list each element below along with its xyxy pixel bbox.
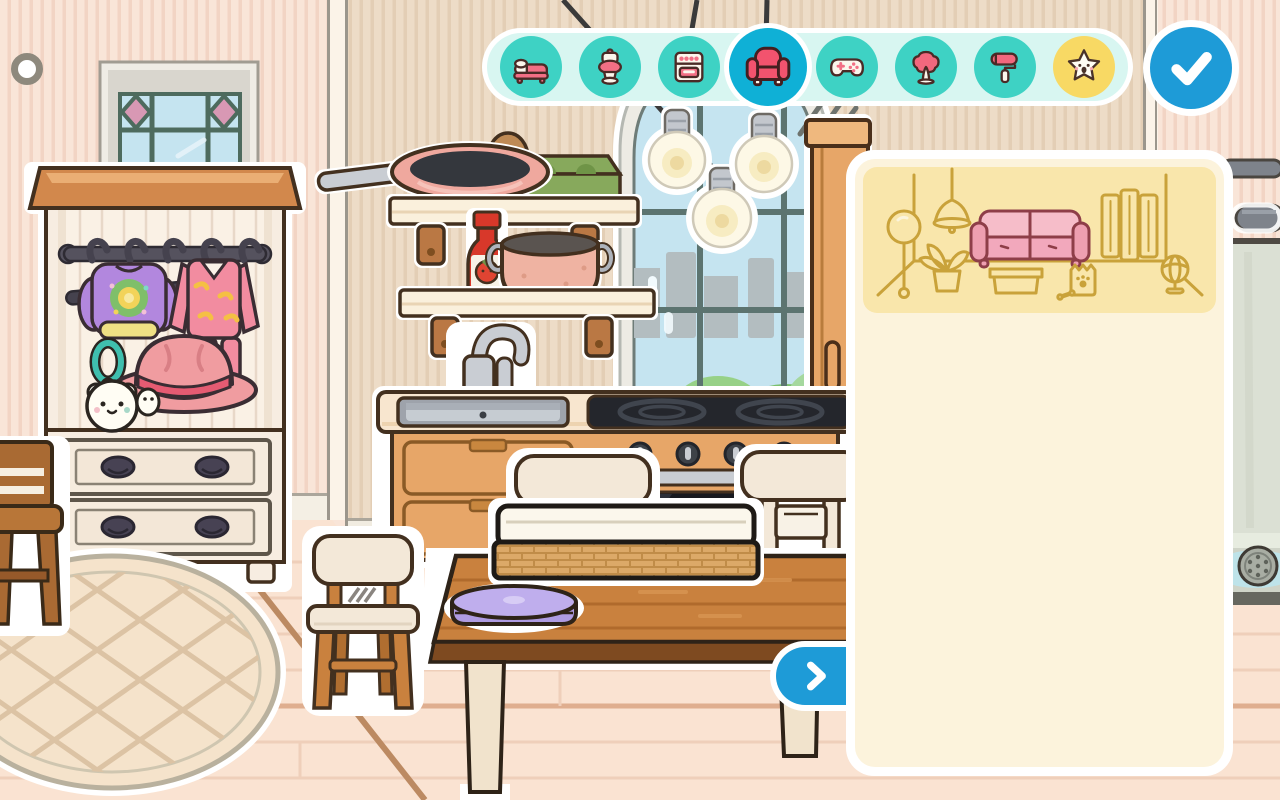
pendant-lamp (934, 169, 970, 233)
stove-icon (669, 47, 709, 87)
living-room-set-preview (863, 167, 1216, 313)
picnic-basket[interactable] (488, 498, 764, 586)
furniture-panel (846, 150, 1233, 776)
toolbar-item-decorate[interactable] (974, 36, 1036, 98)
bed-icon (511, 47, 551, 87)
toolbar-item-bathroom[interactable] (579, 36, 641, 98)
pink-sofa (971, 211, 1089, 267)
shower-drain (1239, 547, 1277, 585)
star-icon (1064, 47, 1104, 87)
folding-screen (1102, 190, 1157, 260)
toolbar-item-outdoor[interactable] (895, 36, 957, 98)
globe (1162, 256, 1188, 293)
stained-glass-transom (100, 62, 258, 176)
toolbar-item-beds[interactable] (500, 36, 562, 98)
game-screen (0, 0, 1280, 800)
storage-chest (990, 269, 1042, 293)
furniture-panel-body[interactable] (855, 159, 1224, 767)
panel-collapse-button[interactable] (770, 641, 852, 711)
purple-sweater[interactable] (79, 264, 177, 338)
cabinet-handle (826, 342, 839, 390)
pet-food-bag (1058, 265, 1095, 299)
game-controller-icon (827, 47, 867, 87)
potted-plant (920, 245, 968, 291)
toilet-icon (590, 47, 630, 87)
wall-hook-ring (11, 53, 43, 85)
wooden-chair[interactable] (0, 436, 70, 636)
sink (398, 398, 568, 426)
kids-chair[interactable] (302, 526, 424, 716)
cooktop (588, 396, 850, 428)
paint-roller-icon (985, 47, 1025, 87)
confirm-button[interactable] (1150, 27, 1232, 109)
toolbar-item-entertainment[interactable] (816, 36, 878, 98)
purple-plate-stack[interactable] (444, 583, 584, 633)
category-toolbar (487, 33, 1128, 101)
toolbar-item-living-room[interactable] (729, 28, 807, 106)
toolbar-item-kitchen[interactable] (658, 36, 720, 98)
frying-pan (387, 141, 553, 203)
furniture-set-preview[interactable] (863, 167, 1216, 313)
toolbar-item-special[interactable] (1053, 36, 1115, 98)
chevron-right-icon (798, 654, 834, 698)
armchair-icon (743, 42, 793, 92)
tree-icon (906, 47, 946, 87)
check-icon (1162, 39, 1220, 97)
